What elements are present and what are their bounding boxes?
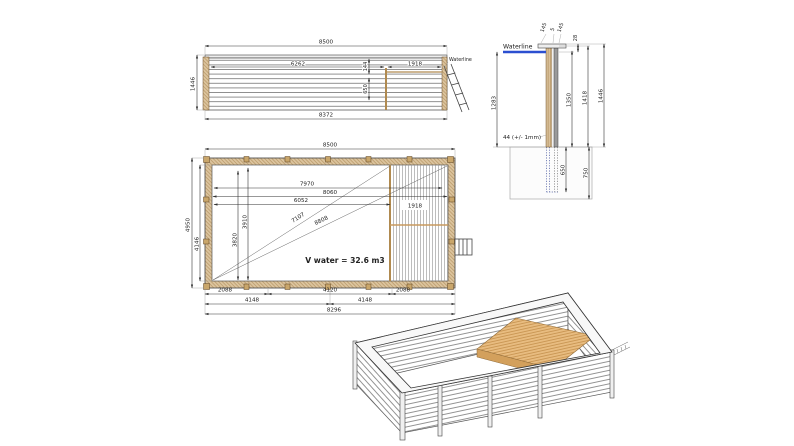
dim-bottom-2088-left: 2088 bbox=[218, 288, 233, 294]
dim-total-height: 1446 bbox=[599, 88, 605, 103]
plan-ladder bbox=[455, 239, 472, 255]
dim-wall-height: 1418 bbox=[583, 90, 589, 105]
dim-top-offset: 28 bbox=[573, 35, 579, 41]
foundation-block bbox=[510, 147, 592, 199]
dim-bottom-total: 8296 bbox=[327, 308, 342, 314]
dim-inner-height: 1350 bbox=[567, 92, 573, 107]
volume-note: V water = 32.6 m3 bbox=[305, 256, 384, 265]
dim-side-pool-section: 6262 bbox=[291, 62, 305, 68]
wall-wood-core bbox=[546, 48, 552, 147]
dim-vert-3910: 3910 bbox=[243, 214, 249, 229]
dim-water-depth: 1283 bbox=[492, 95, 498, 110]
section-waterline-label: Waterline bbox=[503, 44, 533, 51]
wall-outer-board bbox=[554, 48, 558, 147]
dim-cap-right: 145 bbox=[557, 22, 566, 33]
dim-embed-depth: 650 bbox=[561, 164, 567, 175]
iso-ladder-detail bbox=[612, 342, 630, 355]
dim-cap-left: 145 bbox=[540, 22, 549, 33]
dim-plan-overall-height: 4950 bbox=[186, 217, 192, 232]
technical-drawing-sheet: 8500 1446 8372 6262 1918 144 650 Waterli… bbox=[0, 0, 794, 446]
plan-deck-hatch bbox=[390, 165, 448, 281]
dim-side-deck-section: 1918 bbox=[408, 62, 423, 68]
dim-plan-inner-height: 4146 bbox=[195, 236, 201, 251]
dim-side-rim-offset: 144 bbox=[363, 62, 369, 72]
side-ladder bbox=[444, 64, 469, 112]
dim-side-overall-width: 8500 bbox=[319, 40, 334, 46]
tolerance-note: 44 (+/- 1mm) bbox=[503, 135, 541, 141]
side-waterline-label: Waterline bbox=[449, 57, 472, 63]
dim-inner-7970: 7970 bbox=[300, 182, 315, 188]
dim-cap-gap: 5 bbox=[550, 27, 557, 32]
dim-side-wall-length: 8372 bbox=[319, 113, 333, 119]
wall-section-view: Waterline 145 5 145 28 1350 1418 1446 12… bbox=[492, 22, 607, 199]
dim-plan-deck-width: 1918 bbox=[408, 204, 423, 210]
left-end-post bbox=[203, 57, 209, 110]
dim-vert-3820: 3820 bbox=[233, 232, 239, 247]
dim-bottom-2088-right: 2088 bbox=[396, 288, 411, 294]
dim-plan-overall-width: 8500 bbox=[323, 143, 338, 149]
drawing-svg: 8500 1446 8372 6262 1918 144 650 Waterli… bbox=[0, 0, 794, 446]
plan-view: 8500 8808 7107 7970 8060 6052 3910 3820 bbox=[186, 143, 473, 315]
dim-bottom-4148-left: 4148 bbox=[245, 298, 260, 304]
dim-side-deck-drop: 650 bbox=[363, 84, 369, 94]
isometric-view bbox=[353, 293, 630, 440]
dim-side-height: 1446 bbox=[191, 76, 197, 91]
side-elevation-view: 8500 1446 8372 6262 1918 144 650 Waterli… bbox=[191, 40, 472, 121]
dim-foundation-depth: 750 bbox=[584, 167, 590, 178]
dim-bottom-4120: 4120 bbox=[323, 288, 338, 294]
dim-bottom-4148-right: 4148 bbox=[358, 298, 373, 304]
dim-inner-8060: 8060 bbox=[323, 190, 338, 196]
dim-inner-6052: 6052 bbox=[294, 198, 308, 204]
